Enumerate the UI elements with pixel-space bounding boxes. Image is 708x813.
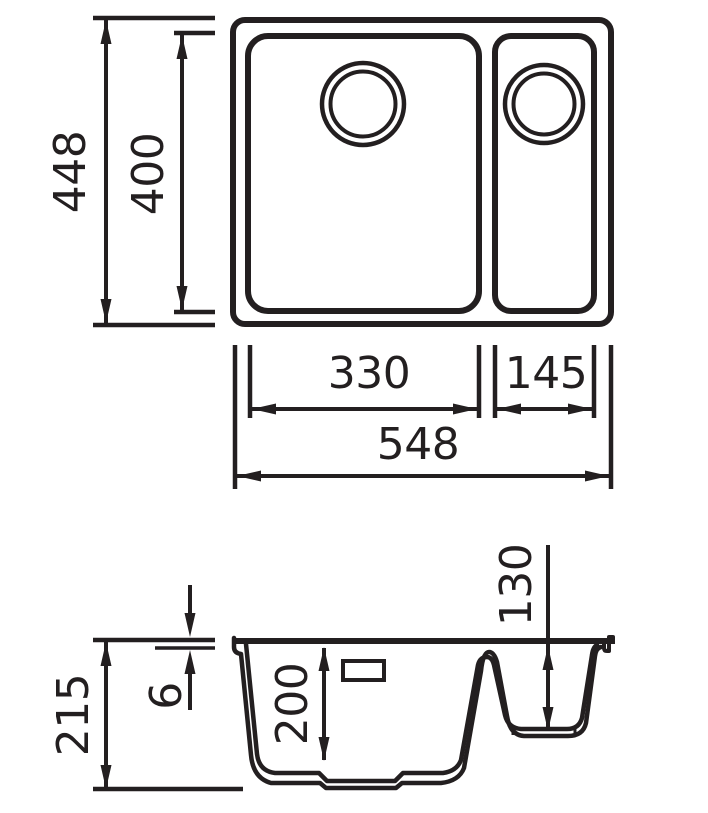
dim-label-overall-depth: 215 bbox=[48, 674, 99, 756]
arrowhead-down bbox=[101, 299, 112, 323]
arrowhead-left bbox=[252, 404, 276, 415]
arrowhead-up bbox=[177, 35, 188, 59]
dimension-main-bowl-depth-200: 200 bbox=[267, 647, 330, 761]
arrowhead-up bbox=[101, 642, 112, 666]
sink-dimension-drawing: 448 400 330 145 bbox=[0, 0, 708, 813]
arrowhead-down bbox=[319, 737, 330, 761]
small-bowl-outline bbox=[495, 36, 594, 311]
main-bowl-drain-outer-circle bbox=[322, 63, 404, 145]
arrowhead-right bbox=[453, 404, 477, 415]
dim-label-main-bowl-width: 330 bbox=[328, 348, 410, 399]
arrowhead-up bbox=[101, 20, 112, 44]
dim-label-bowl-height: 400 bbox=[123, 133, 174, 215]
arrowhead-down bbox=[185, 613, 196, 637]
arrowhead-up bbox=[185, 650, 196, 674]
top-view bbox=[233, 20, 611, 324]
main-bowl-outline bbox=[248, 36, 479, 311]
dimension-overall-depth-215: 215 bbox=[48, 640, 243, 789]
dimension-widths: 330 145 548 bbox=[235, 345, 611, 489]
dim-label-small-bowl-depth: 130 bbox=[491, 544, 542, 626]
dim-label-overall-height: 448 bbox=[45, 131, 96, 213]
dimension-overall-width-548: 548 bbox=[237, 419, 609, 482]
dim-label-main-bowl-depth: 200 bbox=[267, 663, 318, 745]
small-bowl-drain-outer-circle bbox=[505, 65, 583, 143]
dim-label-small-bowl-width: 145 bbox=[505, 348, 587, 399]
arrowhead-down bbox=[177, 286, 188, 310]
arrowhead-right bbox=[585, 471, 609, 482]
arrowhead-left bbox=[497, 404, 521, 415]
dimension-rim-thickness-6: 6 bbox=[141, 585, 215, 710]
dimension-small-bowl-width-145: 145 bbox=[497, 348, 592, 415]
dimension-main-bowl-width-330: 330 bbox=[252, 348, 477, 415]
arrowhead-up bbox=[543, 646, 554, 670]
small-bowl-drain-inner-circle bbox=[514, 74, 575, 135]
overflow-opening-outline bbox=[343, 661, 384, 680]
dim-label-rim-thickness: 6 bbox=[141, 682, 192, 710]
arrowhead-left bbox=[237, 471, 261, 482]
arrowhead-up bbox=[319, 647, 330, 671]
arrowhead-down bbox=[101, 765, 112, 789]
technical-drawing-page: 448 400 330 145 bbox=[0, 0, 708, 813]
main-bowl-drain-inner-circle bbox=[331, 72, 396, 137]
dimension-bowl-height-400: 400 bbox=[123, 33, 215, 312]
dim-label-overall-width: 548 bbox=[377, 419, 459, 470]
arrowhead-right bbox=[568, 404, 592, 415]
